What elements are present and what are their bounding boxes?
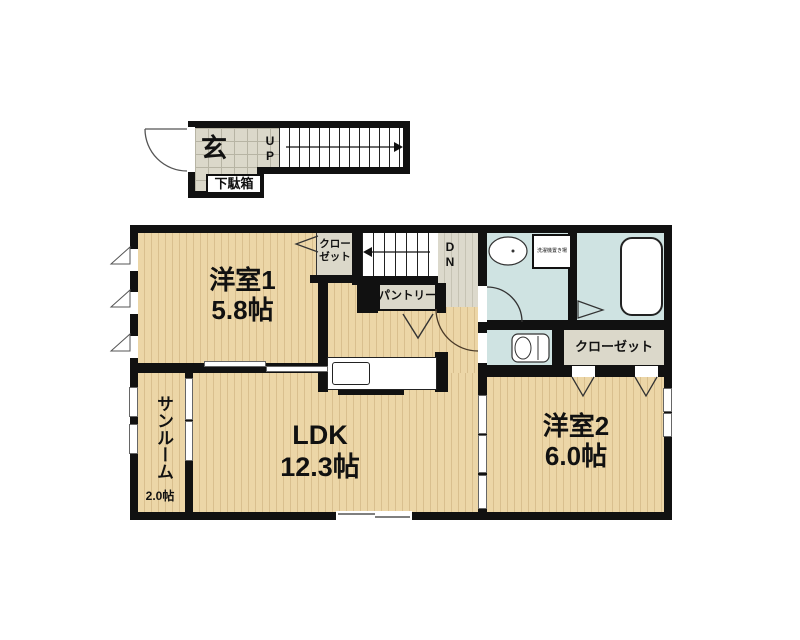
room1-window-gap xyxy=(129,336,138,358)
room1-window-gap xyxy=(129,292,138,314)
sunroom-window xyxy=(129,387,138,417)
sunroom-size: 2.0帖 xyxy=(138,488,182,504)
ldk-name: LDK xyxy=(230,420,410,450)
washroom-door-gap xyxy=(478,286,487,322)
bathtub xyxy=(620,237,663,316)
room2-size: 6.0帖 xyxy=(490,442,662,470)
toilet-floor xyxy=(487,330,552,365)
room2-closet-door-gap xyxy=(635,366,658,377)
sunroom-name: サンルーム xyxy=(148,383,176,491)
room2-window xyxy=(663,413,672,437)
wall-toilet-closet xyxy=(552,330,564,365)
stairs-up-label: UP xyxy=(259,130,277,168)
room2-closet-door-gap xyxy=(572,366,595,377)
wall-wet-middle xyxy=(478,320,672,330)
shoe-cabinet-box: 下駄箱 xyxy=(206,174,262,194)
sunroom-ldk-door-panel xyxy=(185,421,193,461)
room1-ldk-sliding-door-panel xyxy=(266,366,328,372)
ldk-bottom-window xyxy=(336,511,412,520)
kitchen-sink xyxy=(332,362,370,385)
washer-label: 洗濯機置き場 xyxy=(537,248,567,255)
room1-window-gap xyxy=(129,249,138,271)
stairs-down-treads xyxy=(362,233,438,278)
ldk-room2-sliding-door-panel xyxy=(478,395,487,434)
pantry-label: パントリー xyxy=(378,283,437,311)
stairs-up-treads xyxy=(279,128,403,167)
room2-name: 洋室2 xyxy=(490,412,662,440)
ldk-size: 12.3帖 xyxy=(230,452,410,482)
stairs-down-label: DN xyxy=(441,238,457,272)
room1-name: 洋室1 xyxy=(150,266,335,294)
genkan-label: 玄 xyxy=(196,132,232,164)
washer-box: 洗濯機置き場 xyxy=(532,234,572,269)
entry-door-gap xyxy=(186,127,195,172)
ldk-room2-sliding-door-panel xyxy=(478,475,487,509)
toilet-door-gap xyxy=(478,333,487,363)
sunroom-ldk-door-panel xyxy=(185,378,193,420)
room2-window xyxy=(663,388,672,412)
room2-closet-label: クローゼット xyxy=(564,330,664,365)
room1-size: 5.8帖 xyxy=(150,296,335,324)
wall-pantry-left-stub xyxy=(357,283,378,313)
sunroom-window xyxy=(129,424,138,454)
room1-ldk-sliding-door-panel xyxy=(204,361,266,367)
floor-plan: 玄 UP 下駄箱 クローゼット クローゼット パントリー 洗濯機置き場 xyxy=(0,0,800,640)
wall-room1-bottom xyxy=(130,363,206,373)
ldk-room2-sliding-door-panel xyxy=(478,435,487,473)
wall-pantry-right-stub xyxy=(437,283,446,313)
